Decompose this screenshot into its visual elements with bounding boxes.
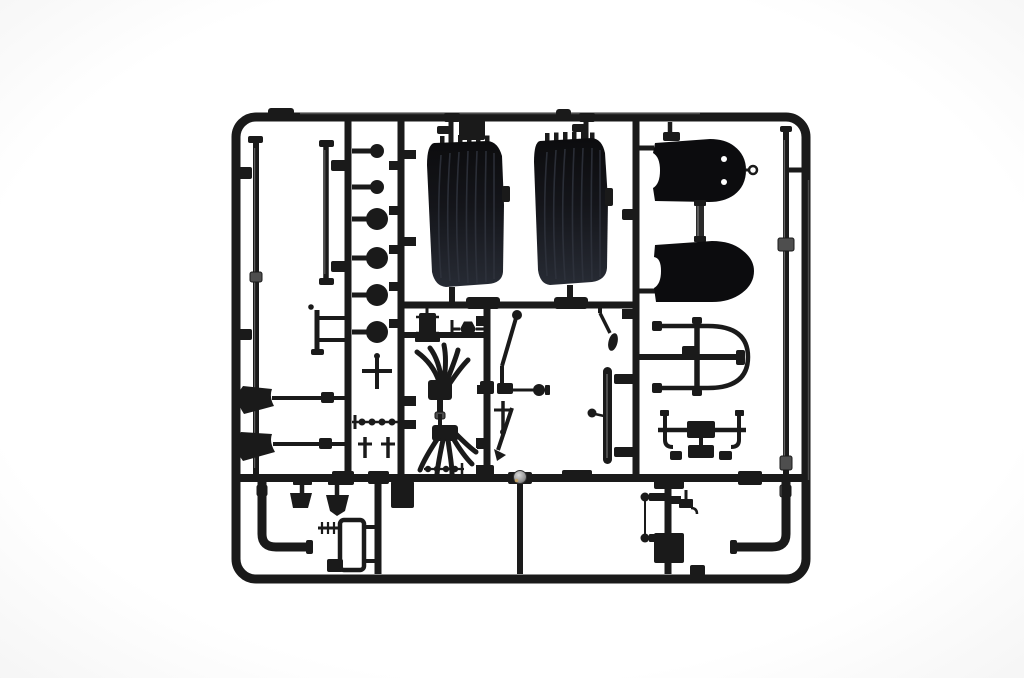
rod-band — [780, 456, 792, 470]
pedal-1 — [290, 479, 312, 508]
plate-part — [459, 120, 485, 140]
frame-stub-left-1 — [234, 167, 252, 179]
block-small — [327, 559, 343, 572]
panel-hole-1 — [721, 156, 727, 162]
runner-hoop-cap — [736, 350, 745, 365]
rod-stub-1 — [331, 160, 349, 171]
product-photo — [0, 0, 1024, 678]
seat-side-tab — [502, 186, 510, 202]
frame-gate-bump-1 — [268, 108, 294, 117]
block-part — [391, 481, 414, 508]
rod-stub-2 — [331, 261, 349, 272]
gate-sphere-glint — [515, 479, 519, 483]
frame-gate-bump-2 — [556, 109, 571, 118]
seat-back-left — [427, 121, 510, 309]
panel-hole-2 — [721, 179, 727, 185]
rod-clip — [778, 238, 794, 251]
frame-stub-left-2 — [234, 329, 252, 340]
sprue-photo-illustration — [0, 0, 1024, 678]
seat-side-tab — [605, 188, 613, 206]
rod-collar — [250, 272, 262, 282]
